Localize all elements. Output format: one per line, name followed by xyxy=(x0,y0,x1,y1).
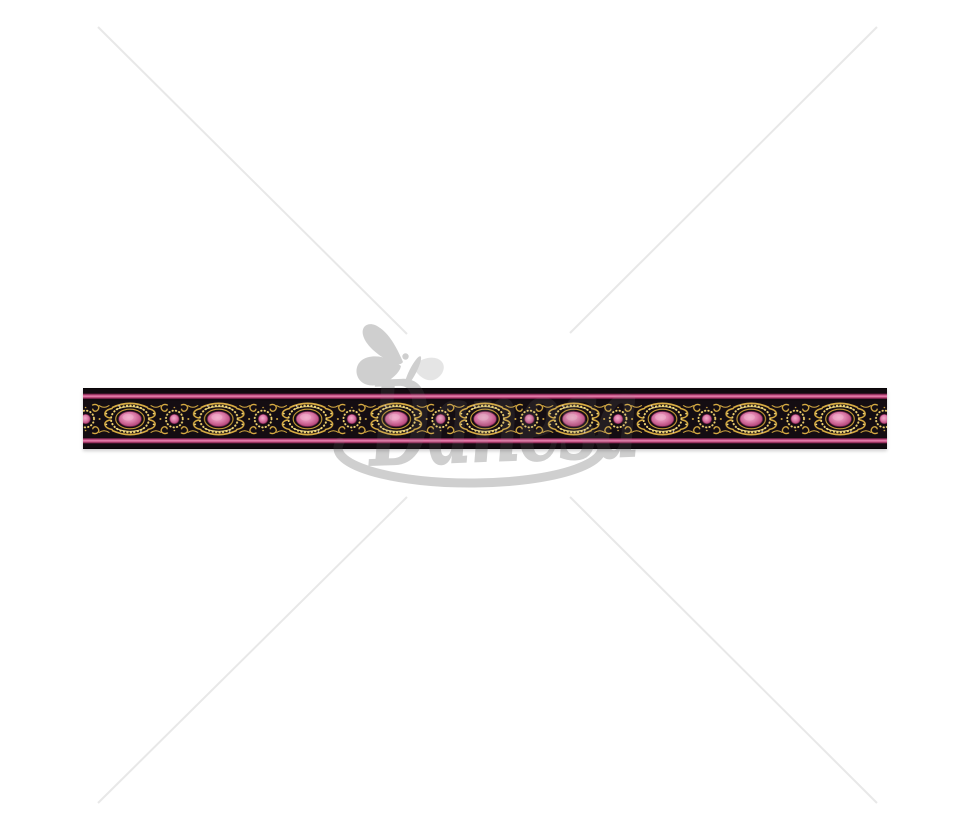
ribbon-image xyxy=(83,388,887,449)
diagonal-line-bottom-left xyxy=(98,497,407,803)
diagonal-line-top-right xyxy=(570,27,877,333)
diagonal-line-top-left xyxy=(98,27,407,334)
product-photo: Danesa xyxy=(0,0,970,832)
ribbon-svg xyxy=(83,388,887,449)
ribbon-pattern xyxy=(83,401,887,437)
ribbon-bottom-stripe xyxy=(83,438,887,444)
diagonal-line-bottom-right xyxy=(570,497,877,803)
ribbon-top-stripe xyxy=(83,394,887,400)
